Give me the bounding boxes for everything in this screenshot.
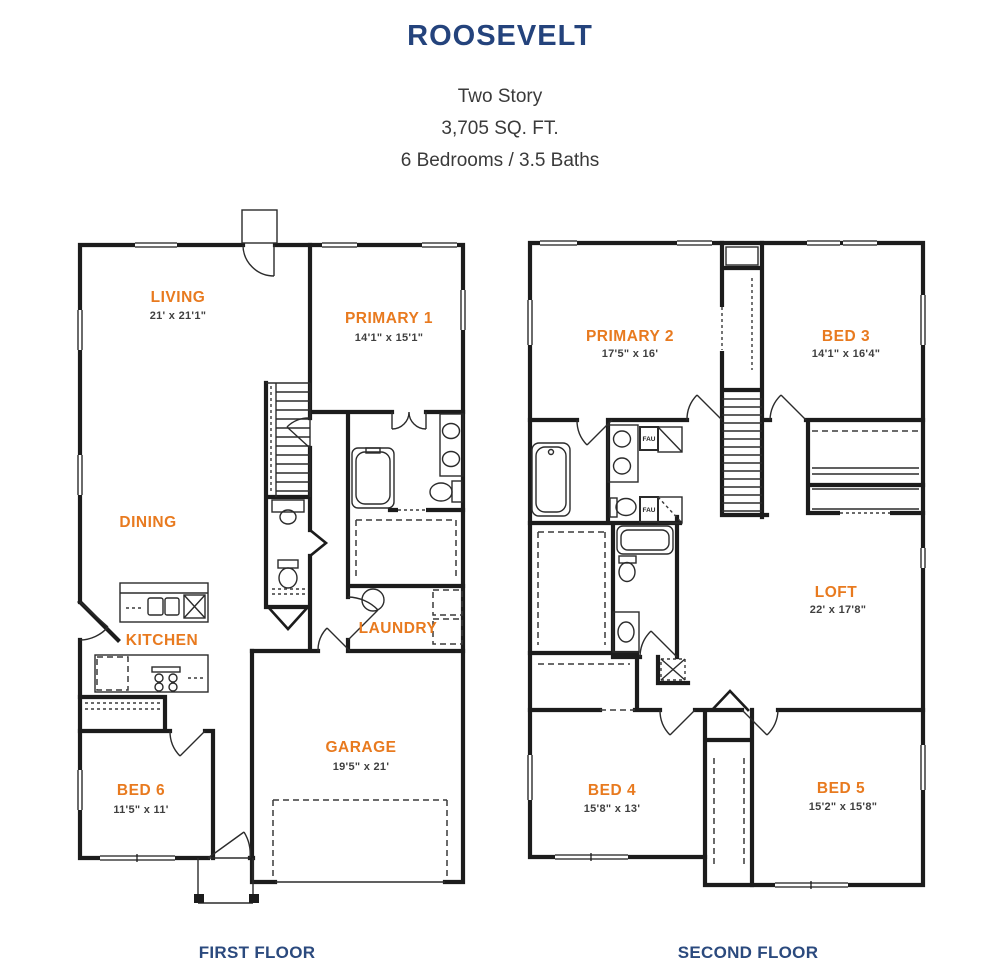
room-label-loft: LOFT xyxy=(815,584,857,601)
toilet-icon xyxy=(279,568,297,588)
stove-icon xyxy=(152,667,180,672)
powder-room xyxy=(272,500,305,594)
burner-icon xyxy=(155,674,163,682)
utility-sink-icon xyxy=(362,589,384,611)
door-swing-icon xyxy=(687,395,722,420)
plan-title: ROOSEVELT xyxy=(0,0,1000,53)
door-swing-icon xyxy=(170,731,205,756)
toilet-icon xyxy=(430,483,452,501)
door-swing-icon xyxy=(640,631,677,657)
room-label-garage: GARAGE xyxy=(325,739,396,756)
first-floor-plan: LIVING 21' x 21'1" PRIMARY 1 14'1" x 15'… xyxy=(76,210,468,903)
rear-porch xyxy=(194,858,259,903)
counter-icon xyxy=(95,655,208,692)
room-dims-garage: 19'5" x 21' xyxy=(333,761,390,773)
cased-opening-icon xyxy=(310,530,326,556)
room-dims-primary2: 17'5" x 16' xyxy=(602,348,659,360)
porch-post-icon xyxy=(249,894,259,903)
second-floor-plan: FAU FAU xyxy=(526,239,928,890)
room-label-bed6: BED 6 xyxy=(117,782,165,799)
sink-icon xyxy=(614,431,631,447)
tub-faucet-icon xyxy=(549,450,554,455)
sheet-header: ROOSEVELT Two Story 3,705 SQ. FT. 6 Bedr… xyxy=(0,0,1000,177)
vanity-icon xyxy=(613,612,639,652)
fau-label: FAU xyxy=(643,507,656,514)
stair-railing-icon xyxy=(722,278,752,370)
door-swing-icon xyxy=(742,710,778,735)
room-label-primary2: PRIMARY 2 xyxy=(586,328,674,345)
room-dims-bed4: 15'8" x 13' xyxy=(584,803,641,815)
door-swing-icon xyxy=(770,395,806,420)
closet-rod-icon xyxy=(714,758,744,868)
toilet-icon xyxy=(616,499,636,516)
kitchen-sink-icon xyxy=(165,598,179,615)
second-floor-caption: SECOND FLOOR xyxy=(678,943,819,962)
cased-opening-icon xyxy=(712,691,748,710)
room-dims-loft: 22' x 17'8" xyxy=(810,604,867,616)
detail-sqft: 3,705 SQ. FT. xyxy=(0,113,1000,145)
room-dims-bed6: 11'5" x 11' xyxy=(113,804,168,816)
room-label-laundry: LAUNDRY xyxy=(359,620,438,637)
cased-opening-icon xyxy=(269,608,307,629)
garage-door-icon xyxy=(208,800,447,882)
door-swing-icon xyxy=(287,418,310,448)
closet-shelf-icon xyxy=(812,468,919,509)
door-swing-icon xyxy=(243,245,274,276)
room-label-primary1: PRIMARY 1 xyxy=(345,310,433,327)
sink-icon xyxy=(614,458,631,474)
front-stoop xyxy=(242,210,277,243)
detail-beds-baths: 6 Bedrooms / 3.5 Baths xyxy=(0,145,1000,177)
first-floor-caption: FIRST FLOOR xyxy=(199,943,316,962)
first-floor-labels: LIVING 21' x 21'1" PRIMARY 1 14'1" x 15'… xyxy=(113,289,437,816)
room-label-bed5: BED 5 xyxy=(817,780,865,797)
room-label-living: LIVING xyxy=(151,289,206,306)
door-swing-icon xyxy=(660,710,695,735)
porch-post-icon xyxy=(194,894,204,903)
closet-shelf-icon xyxy=(272,589,305,594)
fau-label: FAU xyxy=(643,436,656,443)
room-dims-primary1: 14'1" x 15'1" xyxy=(355,332,424,344)
door-swing-icon xyxy=(318,628,350,651)
toilet-tank-icon xyxy=(278,560,298,568)
closet-rod-icon xyxy=(356,520,456,580)
pantry-shelf-icon xyxy=(85,703,160,709)
room-dims-bed5: 15'2" x 15'8" xyxy=(809,801,878,813)
plan-details: Two Story 3,705 SQ. FT. 6 Bedrooms / 3.5… xyxy=(0,81,1000,177)
room-dims-bed3: 14'1" x 16'4" xyxy=(812,348,881,360)
burner-icon xyxy=(169,683,177,691)
room-label-dining: DINING xyxy=(119,514,176,531)
burner-icon xyxy=(155,683,163,691)
room-dims-living: 21' x 21'1" xyxy=(150,310,207,322)
toilet-icon xyxy=(619,563,635,582)
refrigerator-icon xyxy=(97,657,128,690)
double-door-swing-icon xyxy=(392,412,426,429)
sink-icon xyxy=(618,622,634,642)
sink-icon xyxy=(443,424,460,439)
toilet-tank-icon xyxy=(452,481,462,502)
staircase-icon xyxy=(718,247,762,511)
washer-icon xyxy=(433,590,462,615)
room-label-bed3: BED 3 xyxy=(822,328,870,345)
primary-bath xyxy=(352,414,463,508)
bathtub-icon xyxy=(352,448,394,508)
island-counter-icon xyxy=(120,583,208,622)
room-label-kitchen: KITCHEN xyxy=(126,632,198,649)
sink-icon xyxy=(443,452,460,467)
closet-rod-icon xyxy=(538,532,605,645)
detail-stories: Two Story xyxy=(0,81,1000,113)
staircase-icon xyxy=(266,383,310,497)
floorplan-sheet: ROOSEVELT Two Story 3,705 SQ. FT. 6 Bedr… xyxy=(0,0,1000,966)
room-label-bed4: BED 4 xyxy=(588,782,636,799)
burner-icon xyxy=(169,674,177,682)
kitchen-sink-icon xyxy=(148,598,163,615)
